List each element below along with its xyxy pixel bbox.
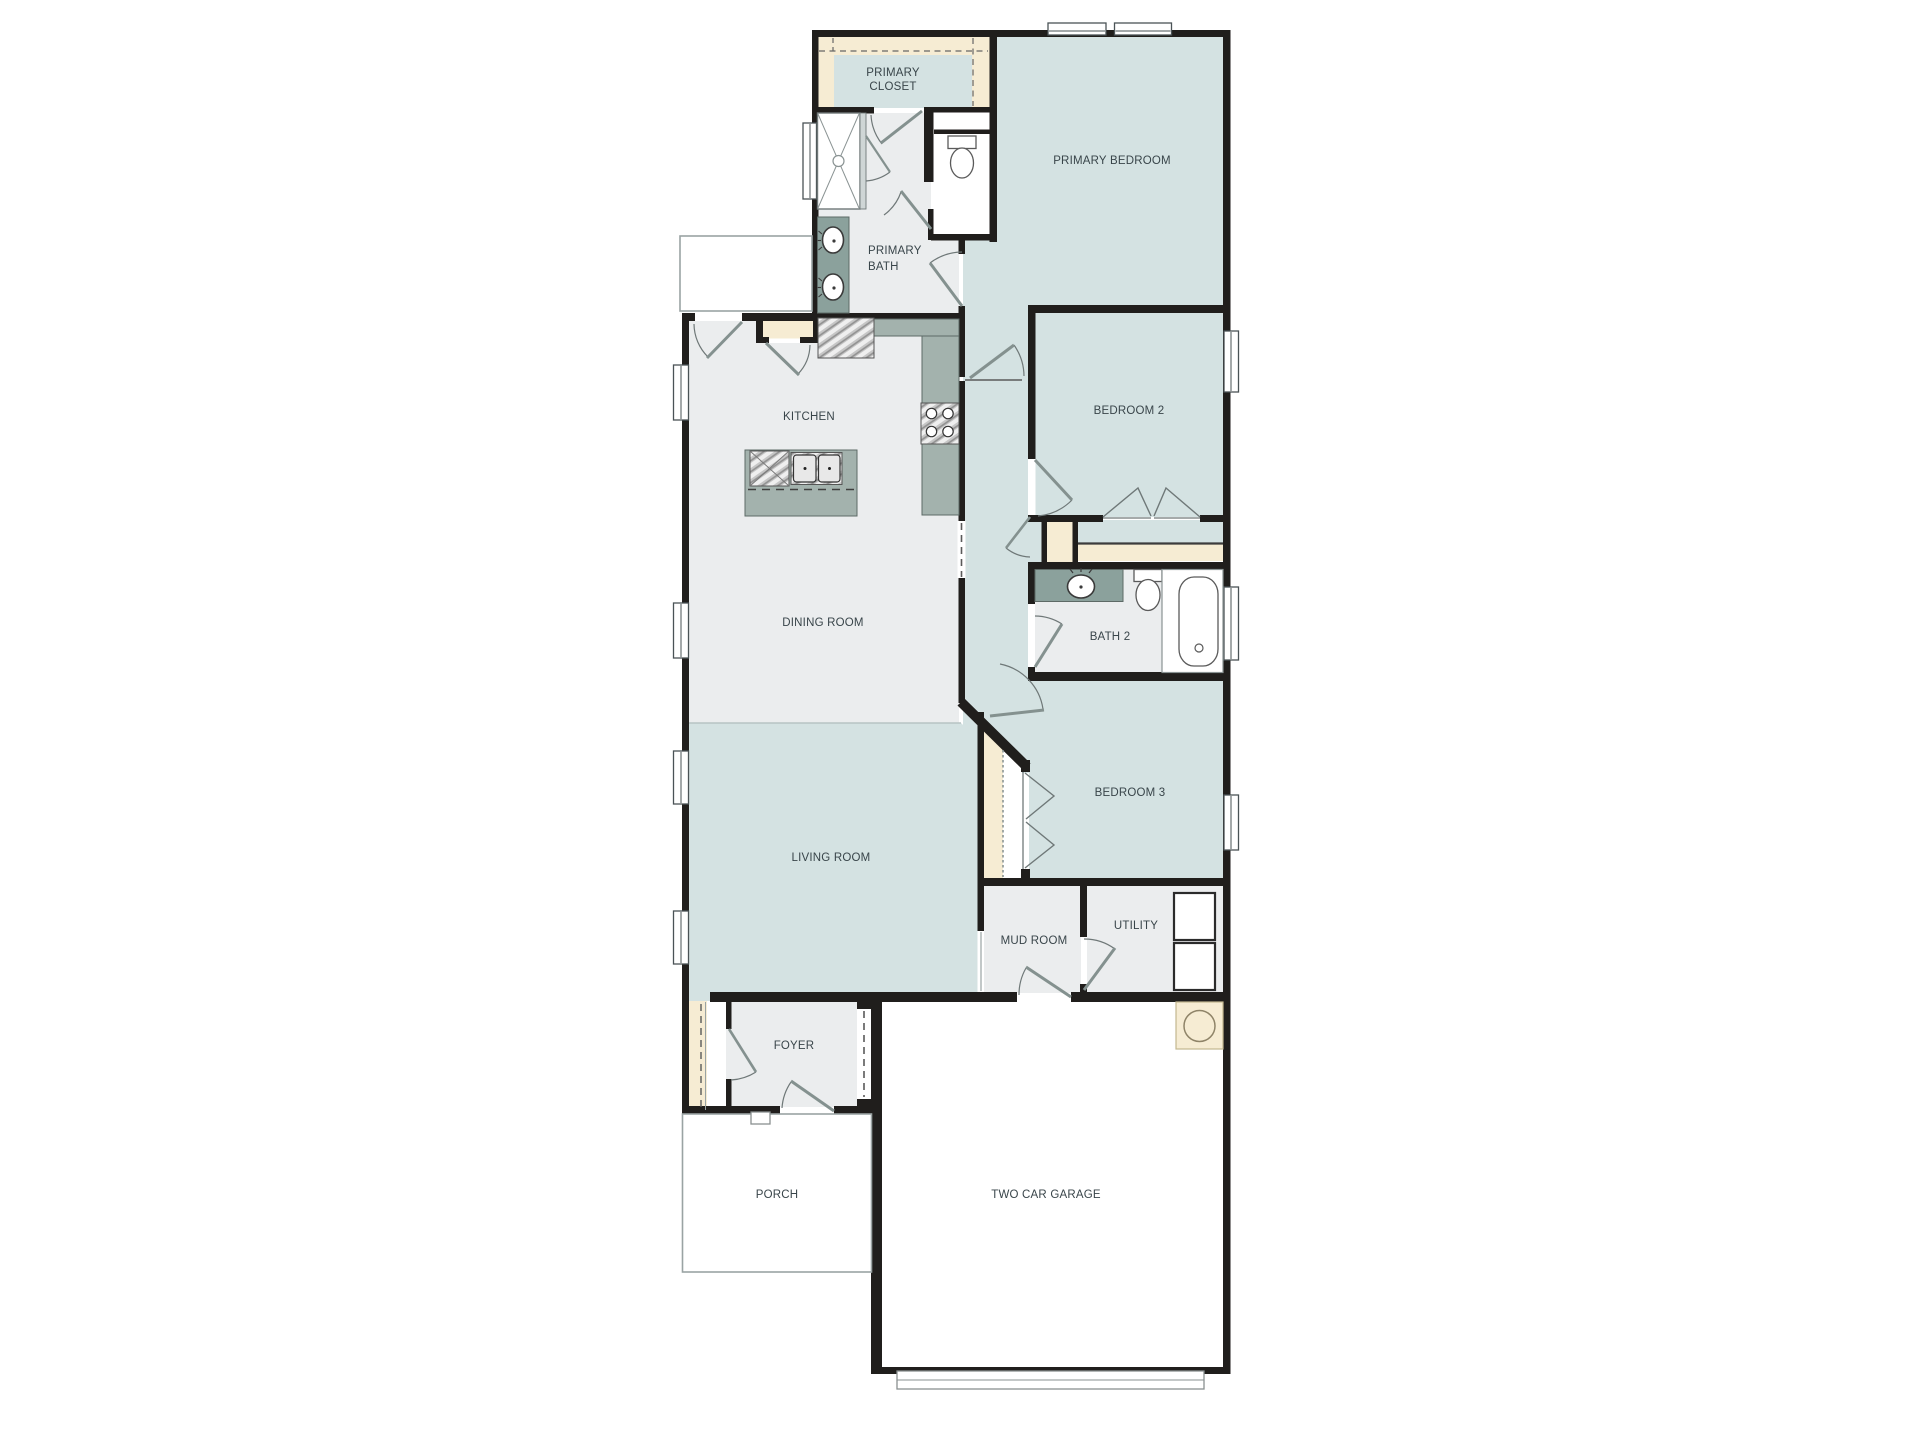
svg-text:CLOSET: CLOSET xyxy=(869,81,916,93)
svg-text:KITCHEN: KITCHEN xyxy=(783,411,835,423)
svg-text:PRIMARY: PRIMARY xyxy=(866,67,920,79)
svg-text:FOYER: FOYER xyxy=(774,1040,815,1052)
svg-text:PRIMARY BEDROOM: PRIMARY BEDROOM xyxy=(1053,155,1171,167)
svg-text:PRIMARY: PRIMARY xyxy=(868,245,922,257)
svg-text:BATH: BATH xyxy=(868,261,899,273)
svg-text:LIVING ROOM: LIVING ROOM xyxy=(792,852,871,864)
svg-text:BEDROOM 3: BEDROOM 3 xyxy=(1095,787,1166,799)
svg-text:BEDROOM 2: BEDROOM 2 xyxy=(1094,405,1165,417)
svg-text:DINING ROOM: DINING ROOM xyxy=(782,617,863,629)
svg-text:PORCH: PORCH xyxy=(756,1189,799,1201)
svg-text:BATH 2: BATH 2 xyxy=(1090,631,1131,643)
svg-text:TWO CAR GARAGE: TWO CAR GARAGE xyxy=(991,1189,1101,1201)
svg-text:UTILITY: UTILITY xyxy=(1114,920,1158,932)
svg-text:MUD ROOM: MUD ROOM xyxy=(1001,935,1068,947)
